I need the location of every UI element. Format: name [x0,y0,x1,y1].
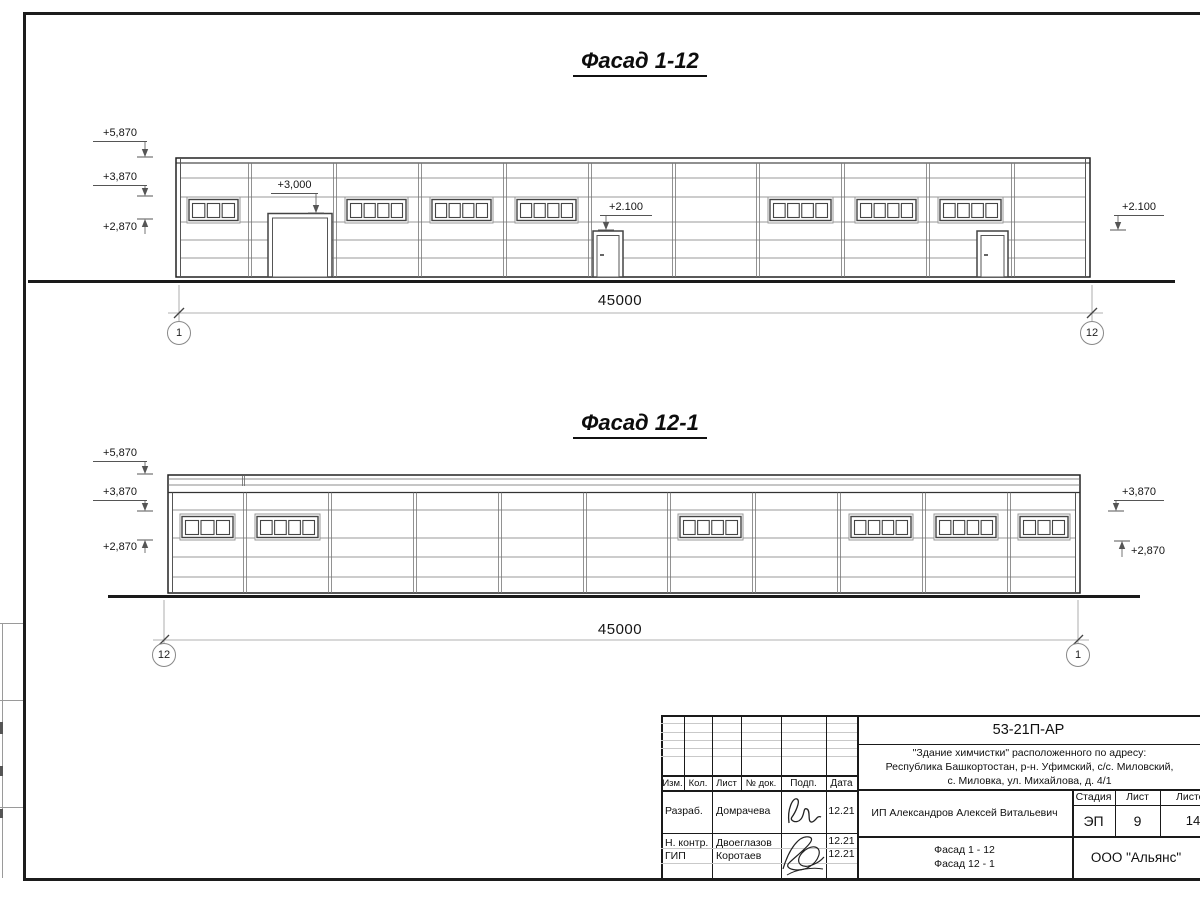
sheet-content-line1: Фасад 1 - 12 [859,843,1070,857]
row-name: Коротаев [716,850,780,862]
signature [779,829,827,879]
row-name: Домрачева [716,805,780,817]
doc-number: 53-21П-АР [857,717,1200,743]
stage-value: ЭП [1072,807,1115,834]
project-address-line2: Республика Башкортостан, р-н. Уфимский, … [859,760,1200,774]
axis-bubble-12: 12 [1080,321,1104,345]
sheet-label: Лист [1115,790,1160,804]
col-izm: Изм. [661,776,684,790]
axis-bubble-1: 1 [167,321,191,345]
row-role: Разраб. [665,805,711,817]
col-kol: Кол. [684,776,712,790]
right-height-mark: +2.100 [1114,201,1164,216]
elevation-mark-3870: +3,870 [93,486,147,501]
col-podp: Подп. [781,776,826,790]
client-name: ИП Александров Алексей Витальевич [859,791,1070,834]
elevation-mark-5870: +5,870 [93,127,147,142]
row-role: Н. контр. [665,837,711,849]
project-address-line3: с. Миловка, ул. Михайлова, д. 4/1 [859,774,1200,788]
row-name: Двоеглазов [716,837,780,849]
facade2-total-dimension: 45000 [570,621,670,638]
row-date: 12.21 [826,805,857,817]
col-dok: № док. [741,776,781,790]
row-date: 12.21 [826,835,857,847]
col-data: Дата [826,776,857,790]
signature [783,793,825,831]
title-block: Изм. Кол. Лист № док. Подп. Дата Разраб.… [661,715,1200,880]
facade2-title: Фасад 12-1 [490,410,790,439]
elevation-mark-2870: +2,870 [95,221,145,235]
sheet-number: 9 [1115,807,1160,834]
sheet-content-line2: Фасад 12 - 1 [859,857,1070,871]
row-role: ГИП [665,850,711,862]
axis-bubble-1: 1 [1066,643,1090,667]
elevation-mark-3870: +3,870 [93,171,147,186]
gate-height-mark: +3,000 [271,179,318,194]
elevation-mark-2870: +2,870 [95,541,145,555]
facade1-title: Фасад 1-12 [490,48,790,77]
axis-bubble-12: 12 [152,643,176,667]
project-address-line1: "Здание химчистки" расположенного по адр… [859,746,1200,760]
stage-label: Стадия [1072,790,1115,804]
elevation-mark-5870: +5,870 [93,447,147,462]
drawing-sheet: Фасад 1-12 +5,870 +3,870 +2,870 +3,000 +… [0,0,1200,900]
row-date: 12.21 [826,848,857,860]
right-elevation-2870: +2,870 [1124,545,1172,559]
right-elevation-3870: +3,870 [1114,486,1164,501]
door-height-mark: +2.100 [600,201,652,216]
company-name: ООО "Альянс" [1072,836,1200,878]
col-list: Лист [712,776,741,790]
sheets-total: 14 [1160,807,1200,834]
facade1-total-dimension: 45000 [570,292,670,309]
sheets-total-label: Листов [1160,790,1200,804]
